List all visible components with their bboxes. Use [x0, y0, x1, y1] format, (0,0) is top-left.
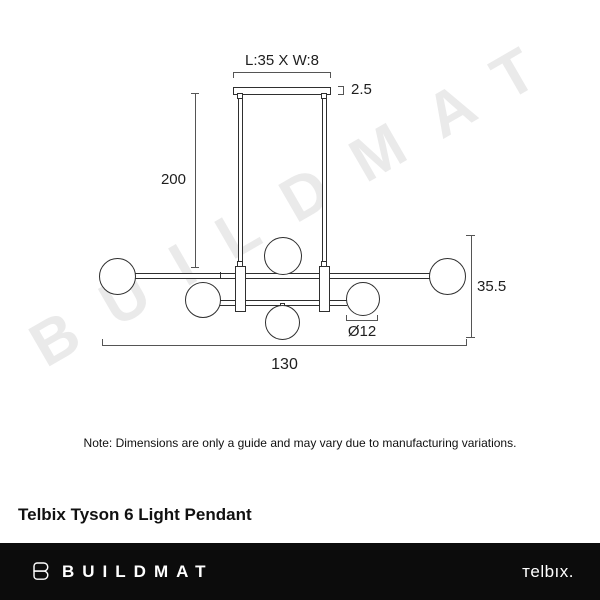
dim-line-canopy-height — [343, 86, 344, 95]
rod-fitting — [237, 93, 243, 99]
dim-tick — [466, 235, 475, 236]
glass-shade-right — [429, 258, 466, 295]
dim-tick — [191, 93, 199, 94]
dim-line-suspension — [195, 93, 196, 267]
dim-line-canopy-size — [233, 72, 331, 73]
glass-shade-mid-right — [346, 282, 380, 316]
dim-tick — [233, 72, 234, 78]
product-title: Telbix Tyson 6 Light Pendant — [18, 505, 252, 525]
suspension-rod-left — [238, 98, 243, 263]
glass-shade-mid-left — [185, 282, 221, 318]
dim-tick — [330, 72, 331, 78]
disclaimer-note: Note: Dimensions are only a guide and ma… — [40, 436, 560, 450]
glass-shade-left — [99, 258, 136, 295]
product-dimension-sheet: BUILDMAT L:35 X W:8 2.5 200 35.5 Ø12 — [0, 0, 600, 600]
dim-label-fixture-length: 130 — [252, 356, 317, 374]
glass-shade-bottom-center — [265, 305, 300, 340]
glass-shade-top-center — [264, 237, 302, 275]
connector-block-right — [319, 266, 330, 312]
dim-line-shade-diameter — [346, 320, 378, 321]
dim-tick — [338, 86, 343, 87]
dim-label-suspension: 200 — [140, 172, 186, 189]
dim-line-fixture-height — [471, 235, 472, 338]
ceiling-canopy — [233, 87, 331, 95]
suspension-rod-right — [322, 98, 327, 263]
telbix-logo: тelbıx. — [522, 562, 574, 582]
dim-label-canopy-size: L:35 X W:8 — [233, 53, 331, 70]
arm-joint — [220, 272, 221, 278]
footer-bar: BUILDMAT тelbıx. — [0, 543, 600, 600]
connector-block-left — [235, 266, 246, 312]
dim-tick — [191, 267, 199, 268]
dim-tick — [377, 315, 378, 320]
dim-label-fixture-height: 35.5 — [477, 279, 506, 296]
buildmat-logo-icon — [26, 558, 53, 585]
dim-tick — [102, 339, 103, 345]
dim-label-canopy-height: 2.5 — [351, 82, 372, 99]
buildmat-logo: BUILDMAT — [26, 558, 214, 585]
dim-label-shade-diameter: Ø12 — [334, 324, 390, 341]
dim-tick — [338, 94, 343, 95]
dim-tick — [346, 315, 347, 320]
dim-tick — [466, 339, 467, 345]
rod-fitting — [321, 93, 327, 99]
dim-tick — [466, 337, 475, 338]
dim-line-fixture-length — [102, 345, 467, 346]
buildmat-wordmark: BUILDMAT — [62, 562, 214, 582]
